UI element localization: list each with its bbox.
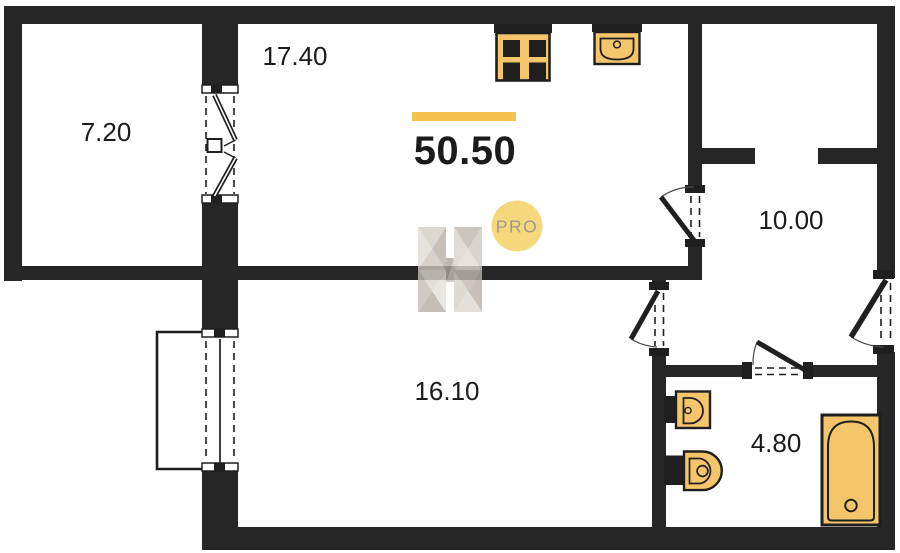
wall-mid-horizontal	[4, 266, 702, 280]
balcony-ledge-outline	[157, 332, 219, 469]
accent-bar	[412, 112, 516, 121]
door-living-hallway	[661, 185, 705, 247]
wall-left	[4, 6, 22, 281]
room-area-label-bathroom: 4.80	[706, 428, 846, 458]
room-area-label-living-kitchen: 17.40	[235, 41, 355, 71]
accordion-door	[202, 85, 238, 203]
room-area-label-balcony: 7.20	[46, 117, 166, 147]
wall-bathroom-top-right	[808, 365, 895, 377]
stove-icon	[494, 24, 552, 81]
pro-badge-label: PRO	[496, 217, 538, 237]
pro-badge: PRO	[492, 201, 543, 252]
accordion-handle	[208, 139, 222, 152]
wall-left-vertical-mid	[202, 200, 238, 333]
room-area-label-hallway: 10.00	[721, 205, 861, 235]
wall-bathroom-top-left	[652, 365, 745, 377]
window-room	[202, 329, 238, 471]
wall-left-vertical-bottom	[202, 470, 238, 550]
kitchen-sink-icon	[592, 24, 642, 64]
wall-bottom	[202, 527, 895, 550]
total-area-label: 50.50	[395, 131, 535, 171]
door-room-hallway	[631, 282, 669, 356]
wall-balcony-divider-top	[202, 24, 238, 88]
door-bathroom	[742, 342, 813, 379]
room-area-label-room: 16.10	[385, 376, 509, 406]
washbasin-icon	[664, 392, 710, 429]
entrance-door	[851, 270, 894, 354]
wall-closet-left-stub	[688, 148, 755, 164]
wall-room-hall-upper	[652, 266, 666, 284]
wall-right-upper	[877, 6, 895, 278]
inner-walls	[4, 24, 895, 550]
wall-top	[4, 6, 895, 24]
wall-closet-right-stub	[818, 148, 877, 164]
floor-plan: PRO 50.50 7.20 17.40 10.00 16.10 4.80	[0, 0, 900, 553]
watermark-h-logo	[418, 227, 482, 312]
floor-plan-drawing: PRO	[0, 0, 900, 553]
